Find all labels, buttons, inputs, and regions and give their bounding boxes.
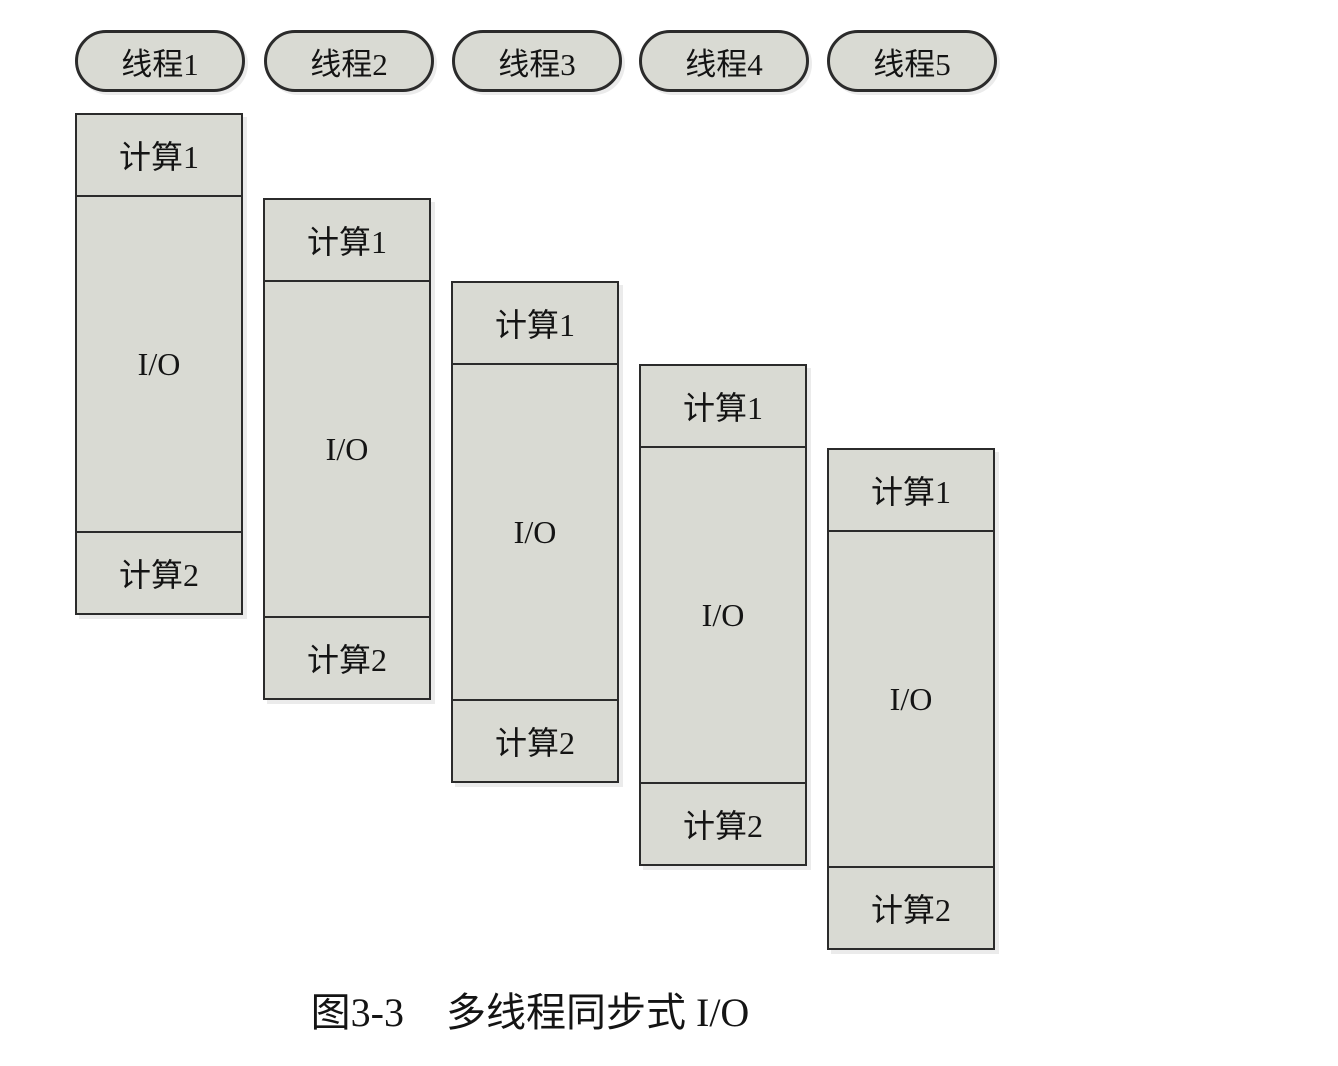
thread-4-io-segment: I/O <box>641 448 805 782</box>
thread-2-io-label: I/O <box>326 431 369 468</box>
thread-1-io-segment: I/O <box>77 197 241 531</box>
thread-1-io-label: I/O <box>138 346 181 383</box>
thread-4-compute2-label: 计算2 <box>683 801 763 847</box>
thread-3-compute2-segment: 计算2 <box>453 699 617 781</box>
thread-5-compute1-segment: 计算1 <box>829 450 993 532</box>
thread-1-compute1-label: 计算1 <box>119 132 199 178</box>
thread-pill-3: 线程3 <box>452 30 622 92</box>
thread-5-timeline: 计算1 I/O 计算2 <box>827 448 995 950</box>
thread-3-compute2-label: 计算2 <box>495 718 575 764</box>
thread-pill-4-label: 线程4 <box>685 39 763 84</box>
thread-4-compute1-label: 计算1 <box>683 383 763 429</box>
thread-5-io-segment: I/O <box>829 532 993 866</box>
thread-2-compute1-label: 计算1 <box>307 217 387 263</box>
diagram-canvas: 线程1 线程2 线程3 线程4 线程5 计算1 I/O 计算2 计算1 I/O … <box>0 0 1338 1066</box>
thread-pill-5-label: 线程5 <box>873 39 951 84</box>
thread-5-io-label: I/O <box>890 681 933 718</box>
thread-4-compute1-segment: 计算1 <box>641 366 805 448</box>
thread-pill-1: 线程1 <box>75 30 245 92</box>
thread-3-io-label: I/O <box>514 514 557 551</box>
thread-1-compute2-label: 计算2 <box>119 550 199 596</box>
thread-5-compute2-segment: 计算2 <box>829 866 993 948</box>
thread-3-compute1-segment: 计算1 <box>453 283 617 365</box>
thread-2-compute2-segment: 计算2 <box>265 616 429 698</box>
figure-caption-title: 多线程同步式 I/O <box>446 980 749 1038</box>
thread-2-timeline: 计算1 I/O 计算2 <box>263 198 431 700</box>
thread-1-timeline: 计算1 I/O 计算2 <box>75 113 243 615</box>
thread-3-compute1-label: 计算1 <box>495 300 575 346</box>
thread-pill-2: 线程2 <box>264 30 434 92</box>
thread-3-timeline: 计算1 I/O 计算2 <box>451 281 619 783</box>
thread-pill-5: 线程5 <box>827 30 997 92</box>
thread-4-compute2-segment: 计算2 <box>641 782 805 864</box>
thread-4-io-label: I/O <box>702 597 745 634</box>
thread-1-compute1-segment: 计算1 <box>77 115 241 197</box>
thread-2-compute1-segment: 计算1 <box>265 200 429 282</box>
figure-caption-number: 图3-3 <box>311 980 404 1038</box>
thread-5-compute2-label: 计算2 <box>871 885 951 931</box>
thread-pill-4: 线程4 <box>639 30 809 92</box>
thread-1-compute2-segment: 计算2 <box>77 531 241 613</box>
thread-pill-1-label: 线程1 <box>121 39 199 84</box>
thread-3-io-segment: I/O <box>453 365 617 699</box>
thread-2-compute2-label: 计算2 <box>307 635 387 681</box>
thread-5-compute1-label: 计算1 <box>871 467 951 513</box>
thread-pill-3-label: 线程3 <box>498 39 576 84</box>
thread-pill-2-label: 线程2 <box>310 39 388 84</box>
thread-4-timeline: 计算1 I/O 计算2 <box>639 364 807 866</box>
thread-2-io-segment: I/O <box>265 282 429 616</box>
figure-caption: 图3-3 多线程同步式 I/O <box>0 980 1060 1038</box>
